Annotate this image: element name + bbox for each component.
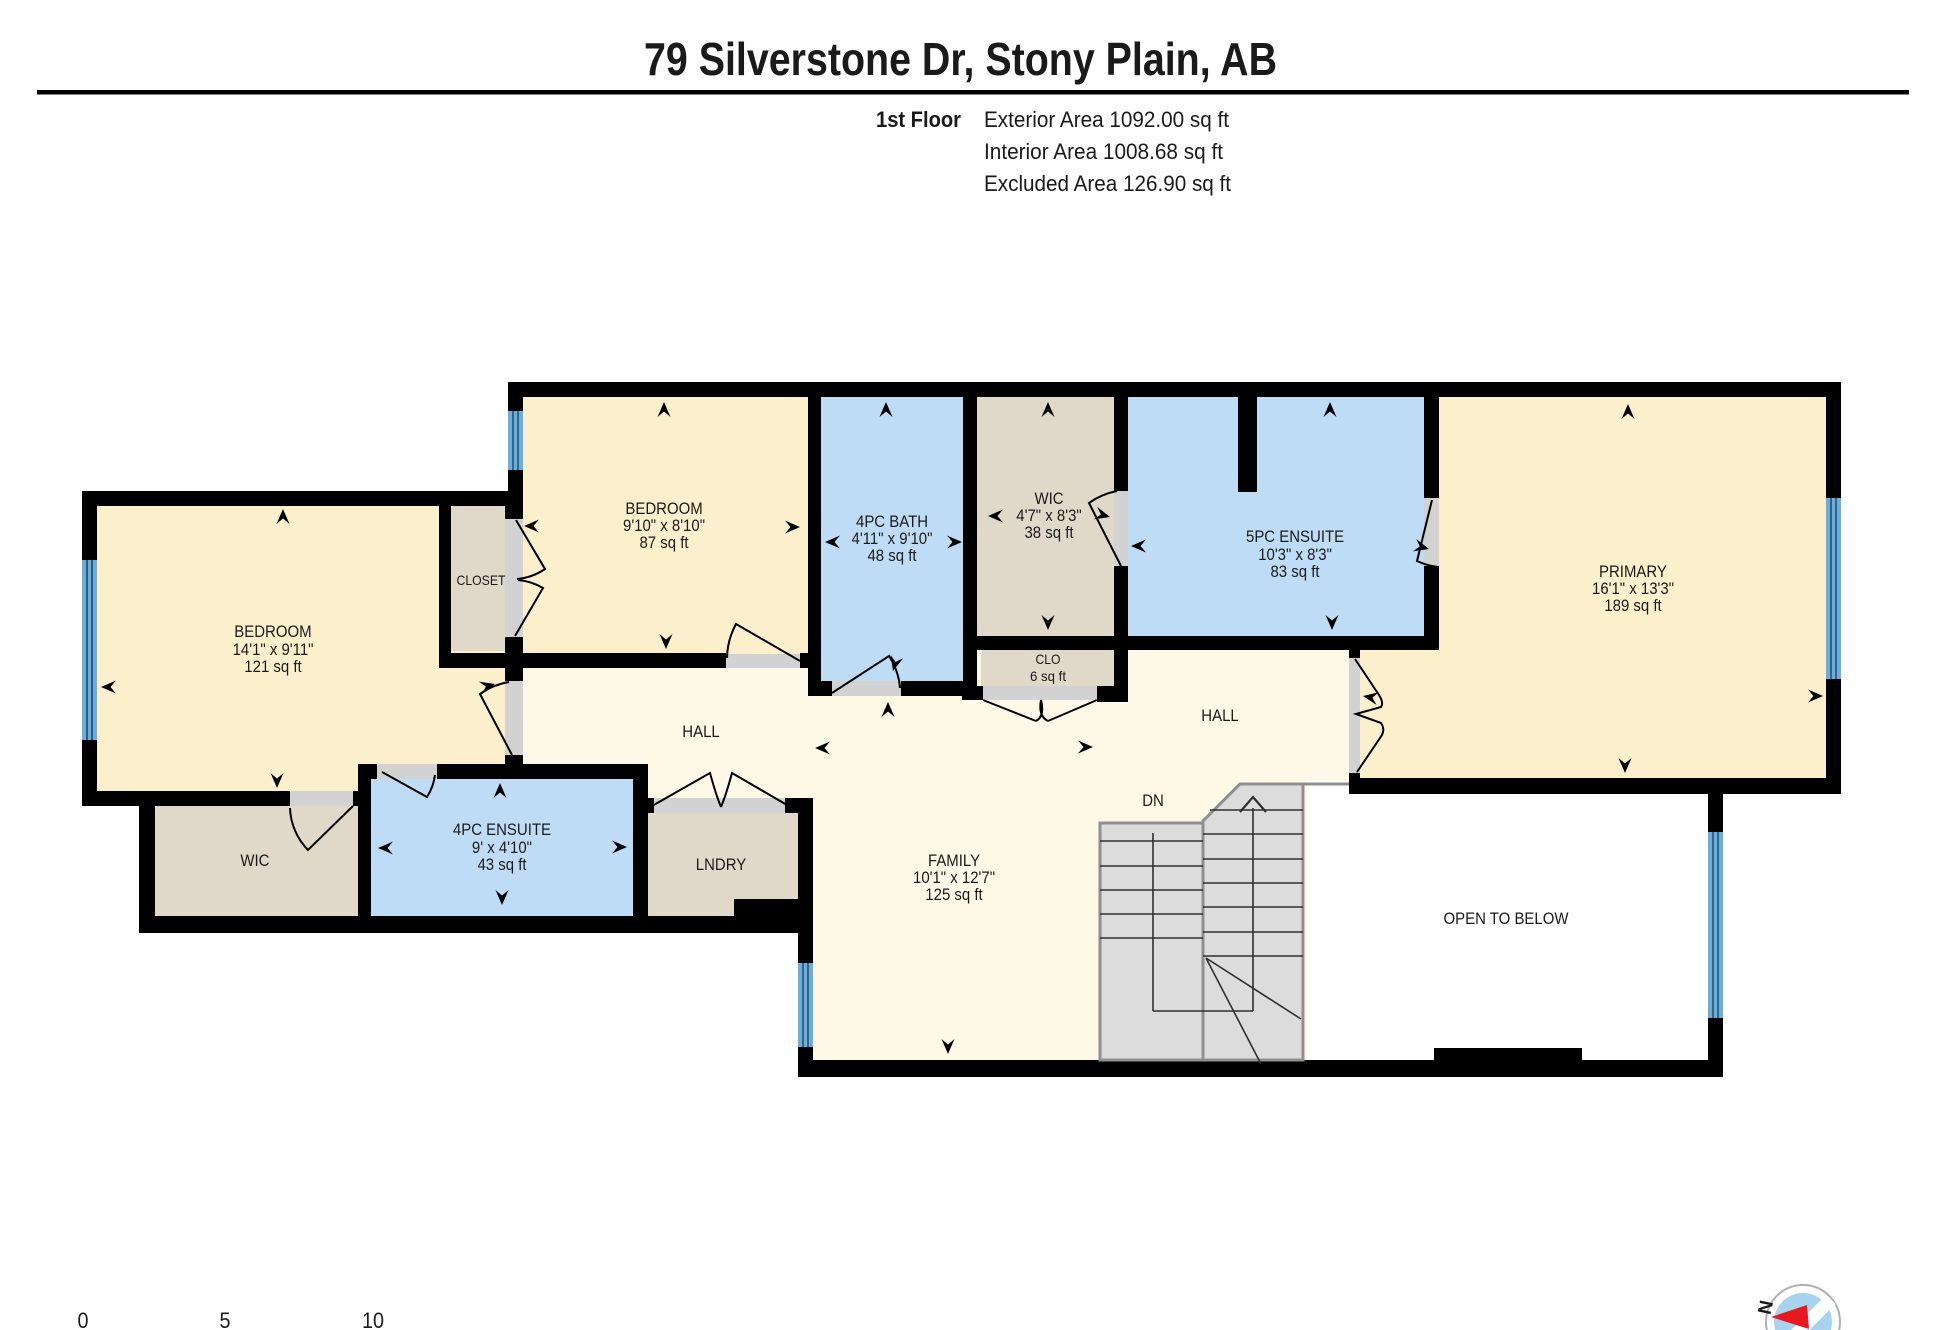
svg-text:87 sq ft: 87 sq ft <box>640 533 689 552</box>
svg-text:4PC ENSUITE: 4PC ENSUITE <box>453 820 551 839</box>
svg-text:189 sq ft: 189 sq ft <box>1604 596 1662 615</box>
svg-text:38 sq ft: 38 sq ft <box>1025 523 1074 542</box>
svg-text:WIC: WIC <box>240 851 269 870</box>
svg-text:125 sq ft: 125 sq ft <box>925 885 983 904</box>
svg-text:48 sq ft: 48 sq ft <box>868 546 917 565</box>
svg-text:0: 0 <box>78 1308 89 1330</box>
svg-text:BEDROOM: BEDROOM <box>234 622 311 641</box>
svg-text:OPEN TO BELOW: OPEN TO BELOW <box>1444 909 1569 928</box>
svg-text:1st Floor: 1st Floor <box>876 107 961 132</box>
svg-text:CLO: CLO <box>1036 651 1061 667</box>
svg-text:5: 5 <box>220 1308 231 1330</box>
svg-text:HALL: HALL <box>682 722 719 741</box>
svg-text:10: 10 <box>362 1308 384 1330</box>
svg-text:N: N <box>1753 1298 1776 1316</box>
svg-text:43 sq ft: 43 sq ft <box>478 855 527 874</box>
svg-text:LNDRY: LNDRY <box>696 855 746 874</box>
svg-text:5PC ENSUITE: 5PC ENSUITE <box>1246 527 1344 546</box>
svg-text:121 sq ft: 121 sq ft <box>244 657 302 676</box>
svg-text:Excluded Area 126.90 sq ft: Excluded Area 126.90 sq ft <box>984 171 1231 196</box>
svg-text:HALL: HALL <box>1201 706 1238 725</box>
svg-text:6 sq ft: 6 sq ft <box>1030 668 1066 684</box>
svg-text:Interior Area 1008.68 sq ft: Interior Area 1008.68 sq ft <box>984 139 1223 164</box>
svg-text:79 Silverstone Dr, Stony Plain: 79 Silverstone Dr, Stony Plain, AB <box>644 33 1277 85</box>
svg-text:DN: DN <box>1142 791 1164 810</box>
svg-text:Exterior Area 1092.00 sq ft: Exterior Area 1092.00 sq ft <box>984 107 1229 132</box>
svg-text:83 sq ft: 83 sq ft <box>1271 562 1320 581</box>
svg-text:CLOSET: CLOSET <box>457 572 506 588</box>
